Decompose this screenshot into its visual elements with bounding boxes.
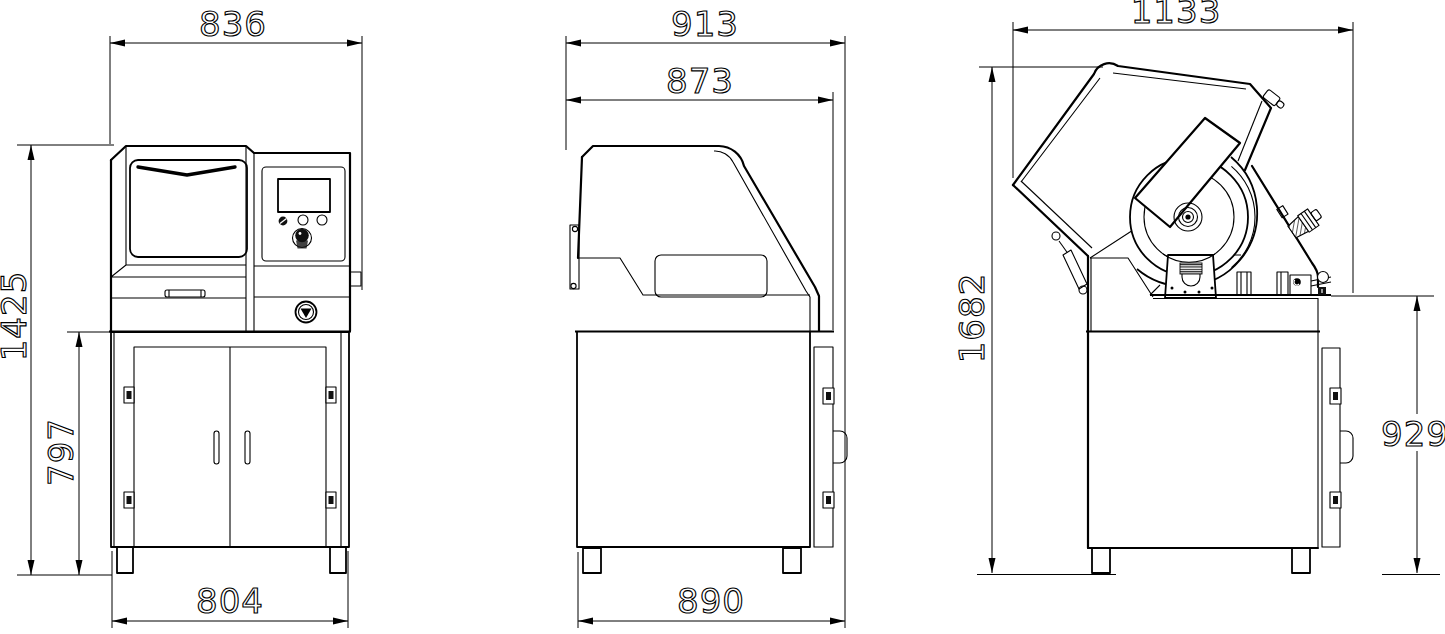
- door-hinge: [1330, 388, 1341, 508]
- dim-text-890: 890: [677, 581, 745, 621]
- dim-text-1425: 1425: [0, 271, 34, 362]
- power-switch: [296, 302, 317, 323]
- door-handle-slot: [214, 431, 219, 464]
- side-feet: [583, 548, 801, 573]
- dim-text-913: 913: [671, 4, 739, 44]
- emergency-stop-button: [293, 229, 312, 249]
- panel-button: [298, 215, 308, 225]
- front-feet: [117, 547, 346, 573]
- open-feet: [1092, 548, 1310, 573]
- front-window: [130, 160, 247, 257]
- spindle-pedestal: [1163, 254, 1216, 298]
- door-hinge: [823, 388, 834, 508]
- side-tab: [350, 272, 361, 286]
- side-view-hood-open: 1133 1682 929: [952, 0, 1445, 575]
- side-cabinet: [577, 332, 847, 547]
- hood-pivot-pin: [1263, 89, 1286, 110]
- dim-text-797: 797: [41, 418, 81, 486]
- dim-text-873: 873: [666, 61, 734, 101]
- dim-front-overall-height: 1425: [0, 145, 114, 575]
- door-handle-slot: [245, 431, 250, 464]
- drawing-canvas: 836 1425 797 804: [0, 0, 1445, 634]
- front-cabinet: [109, 332, 351, 548]
- front-view: 836 1425 797 804: [0, 4, 362, 628]
- front-hood: [111, 146, 350, 331]
- technical-drawing: 836 1425 797 804: [0, 0, 1445, 634]
- dim-text-804: 804: [196, 581, 264, 621]
- rear-door: [1322, 348, 1340, 547]
- dim-side-hood-depth: 873: [566, 61, 833, 330]
- side-body: [575, 255, 834, 332]
- dim-text-1133: 1133: [1131, 0, 1222, 31]
- dim-text-1682: 1682: [952, 273, 992, 364]
- side-view-hood-closed: 913 873 890: [566, 4, 847, 628]
- spindle-hub: [1174, 203, 1202, 231]
- rear-recess-panel: [655, 255, 767, 297]
- panel-button: [317, 215, 327, 225]
- dim-open-overall-height: 1682: [952, 67, 1103, 573]
- coolant-nozzle: [1286, 205, 1325, 240]
- dim-text-836: 836: [199, 4, 267, 44]
- dim-side-base-depth: 890: [578, 552, 845, 628]
- side-hood: [578, 146, 819, 331]
- front-control-panel: [262, 167, 345, 261]
- display-screen: [278, 179, 330, 212]
- rear-door: [814, 347, 833, 547]
- gas-strut: [1052, 232, 1087, 294]
- dim-text-929: 929: [1381, 414, 1445, 454]
- dim-front-base-width: 804: [112, 551, 348, 628]
- dim-front-cabinet-height: 797: [41, 332, 112, 575]
- front-drawer-handle: [165, 290, 205, 297]
- vise-body: [1290, 275, 1311, 295]
- vise-handwheel: [1318, 272, 1329, 283]
- dim-table-height: 929: [1331, 296, 1445, 573]
- open-cabinet: [1086, 298, 1353, 548]
- rear-door-handle: [1340, 431, 1353, 463]
